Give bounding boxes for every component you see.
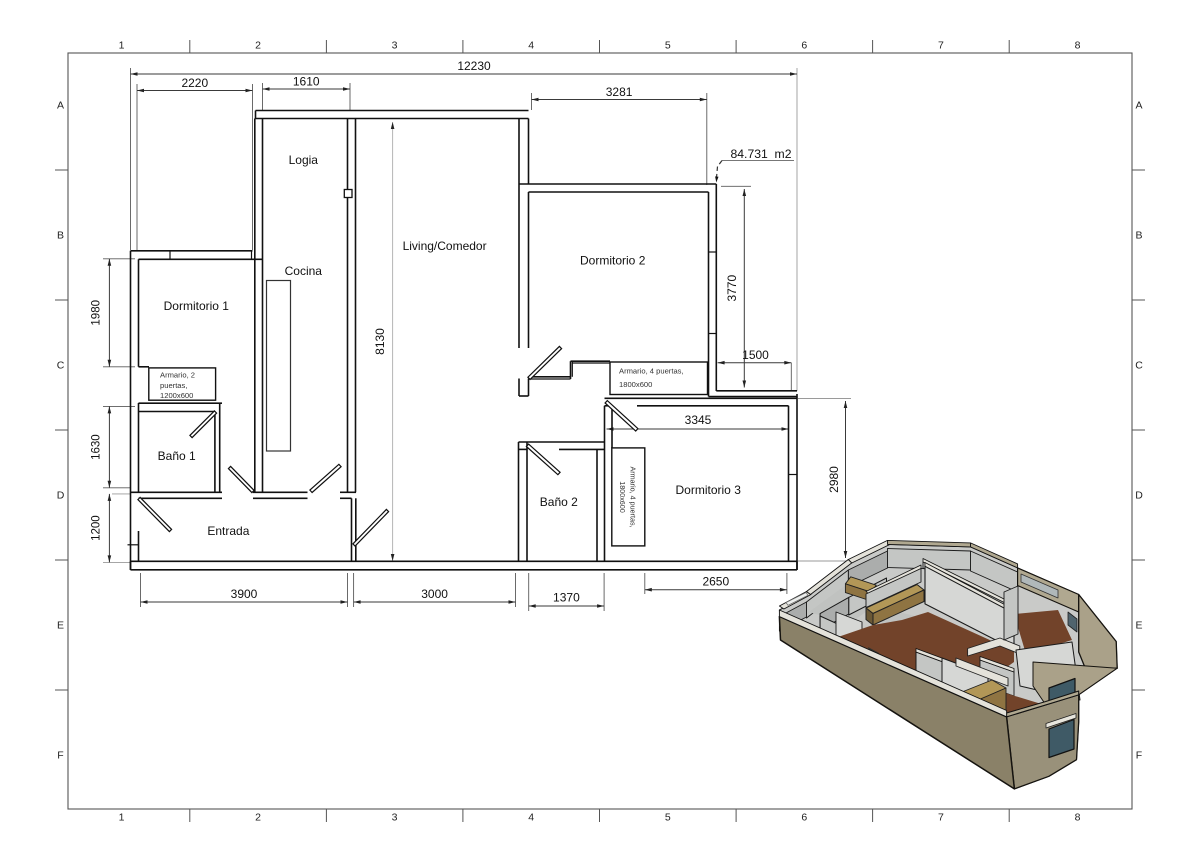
svg-text:Baño 2: Baño 2 [540,495,578,509]
svg-text:3345: 3345 [685,413,712,427]
svg-text:2: 2 [255,812,261,824]
svg-text:3281: 3281 [606,85,633,99]
svg-text:4: 4 [528,812,534,824]
svg-text:3: 3 [392,812,398,824]
svg-text:1980: 1980 [91,300,103,326]
svg-text:1: 1 [119,812,125,824]
svg-text:F: F [1136,750,1142,762]
svg-text:B: B [1135,230,1142,242]
svg-text:8: 8 [1075,812,1081,824]
svg-text:2: 2 [255,40,261,52]
svg-text:Dormitorio 3: Dormitorio 3 [676,483,742,497]
svg-text:84.731 m2: 84.731 m2 [731,147,792,161]
svg-text:3770: 3770 [725,275,739,302]
svg-text:2650: 2650 [702,575,729,589]
svg-text:Armario, 4 puertas,: Armario, 4 puertas, [629,466,638,527]
svg-text:2980: 2980 [827,466,841,493]
svg-text:4: 4 [528,40,534,52]
svg-text:5: 5 [665,812,671,824]
svg-text:Baño 1: Baño 1 [158,449,196,463]
svg-text:Dormitorio 2: Dormitorio 2 [580,254,646,268]
svg-text:E: E [1135,620,1142,632]
svg-text:1800x600: 1800x600 [619,380,652,389]
svg-text:Armario, 4 puertas,: Armario, 4 puertas, [619,367,684,376]
svg-text:6: 6 [801,812,807,824]
svg-text:12230: 12230 [457,59,491,73]
svg-text:3900: 3900 [231,587,258,601]
svg-text:D: D [1135,490,1143,502]
svg-text:Living/Comedor: Living/Comedor [403,239,487,253]
svg-text:D: D [57,490,65,502]
svg-text:1500: 1500 [742,348,769,362]
svg-text:1630: 1630 [91,434,103,460]
svg-text:1800x600: 1800x600 [618,481,627,513]
svg-text:A: A [1135,100,1142,112]
svg-text:7: 7 [938,812,944,824]
svg-text:1: 1 [119,40,125,52]
svg-text:puertas,: puertas, [160,381,187,390]
svg-text:8: 8 [1075,40,1081,52]
svg-text:B: B [57,230,64,242]
svg-text:C: C [57,360,65,372]
svg-text:6: 6 [801,40,807,52]
svg-text:1200x600: 1200x600 [160,391,193,400]
svg-text:3: 3 [392,40,398,52]
svg-text:2220: 2220 [181,76,208,90]
svg-text:E: E [57,620,64,632]
svg-text:Entrada: Entrada [207,524,249,538]
svg-text:5: 5 [665,40,671,52]
svg-text:A: A [57,100,64,112]
svg-text:8130: 8130 [373,328,387,355]
svg-text:1200: 1200 [91,515,103,541]
svg-text:7: 7 [938,40,944,52]
svg-text:C: C [1135,360,1143,372]
svg-text:1610: 1610 [293,75,320,89]
svg-text:Dormitorio 1: Dormitorio 1 [164,299,230,313]
svg-text:1370: 1370 [553,591,580,605]
svg-text:F: F [57,750,63,762]
svg-text:Armario, 2: Armario, 2 [160,371,195,380]
svg-text:Logia: Logia [289,153,319,167]
svg-text:3000: 3000 [421,587,448,601]
svg-text:Cocina: Cocina [285,264,323,278]
